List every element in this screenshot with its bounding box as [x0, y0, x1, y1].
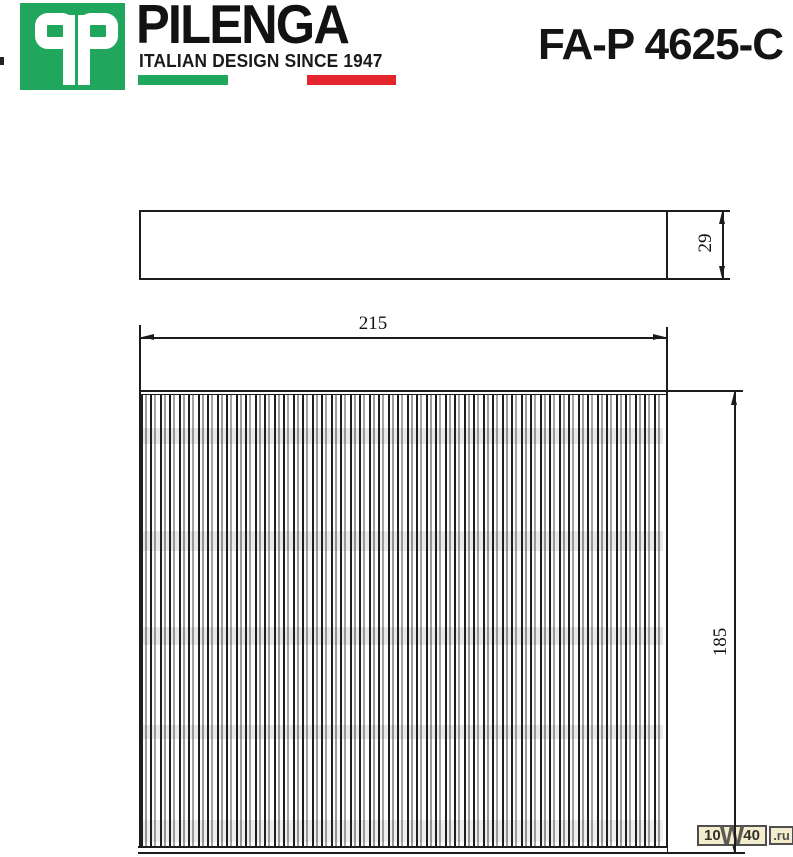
dimension-label-height: 185	[711, 617, 731, 667]
frame-right-edge	[666, 327, 668, 852]
flag-green-bar	[138, 75, 228, 85]
watermark-w: W	[720, 826, 745, 844]
watermark-suffix-box: .ru	[769, 826, 793, 845]
pleat-shading-band	[141, 725, 663, 739]
flag-red-bar	[307, 75, 396, 85]
watermark: 10 W 40 .ru	[697, 825, 793, 846]
brand-name: PILENGA	[136, 2, 375, 48]
dimension-label-width: 215	[338, 314, 408, 334]
filter-pleats	[141, 395, 663, 847]
arrowhead-icon	[653, 334, 665, 340]
watermark-text: 10	[704, 828, 721, 843]
dimension-line-width	[139, 337, 668, 339]
pleat-shading-band	[141, 531, 663, 551]
pleat-shading-band	[141, 428, 663, 444]
frame-bottom-bar	[138, 846, 667, 854]
watermark-main-box: 10 W 40	[697, 825, 767, 846]
part-number: FA-P 4625-C	[538, 20, 783, 70]
dimension-label-depth: 29	[696, 223, 716, 263]
arrowhead-icon	[142, 334, 154, 340]
arrowhead-icon	[719, 266, 725, 278]
pleat-shading-band	[141, 627, 663, 645]
extension-line	[666, 390, 743, 392]
watermark-text: 40	[743, 828, 760, 843]
pleat-shading-band	[141, 820, 663, 842]
pilenga-logo-icon	[20, 3, 125, 90]
arrowhead-icon	[719, 212, 725, 224]
page: PILENGA ITALIAN DESIGN SINCE 1947 FA-P 4…	[0, 0, 793, 857]
side-view-outline	[139, 210, 668, 280]
dimension-line-height	[734, 392, 736, 853]
frame-header-line	[139, 390, 668, 392]
extension-line	[668, 278, 730, 280]
brand-tagline: ITALIAN DESIGN SINCE 1947	[139, 51, 391, 72]
scan-artifact	[0, 57, 4, 65]
